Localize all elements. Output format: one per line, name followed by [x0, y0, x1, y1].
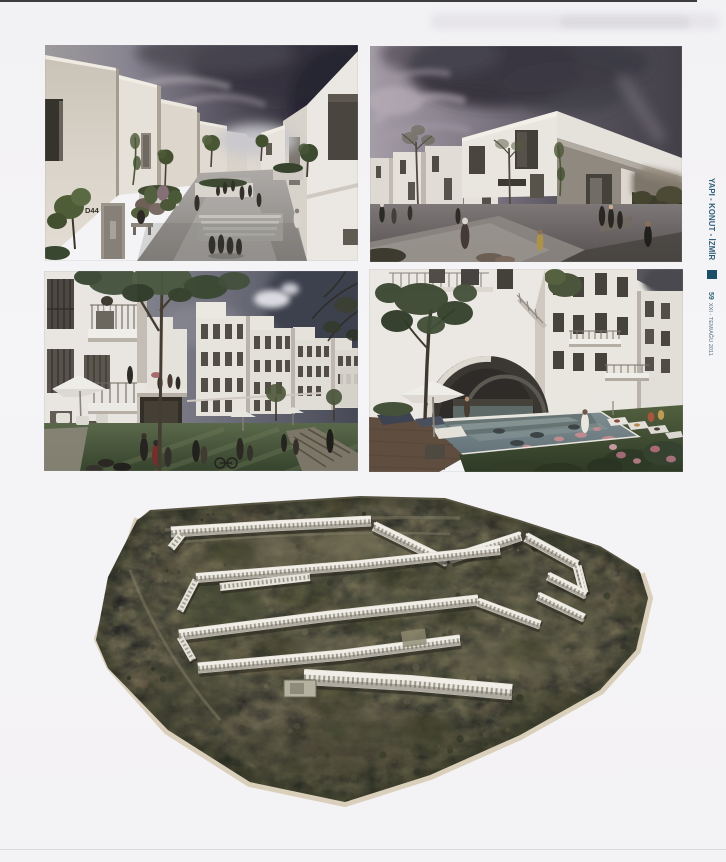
svg-text:D44: D44	[85, 206, 100, 215]
